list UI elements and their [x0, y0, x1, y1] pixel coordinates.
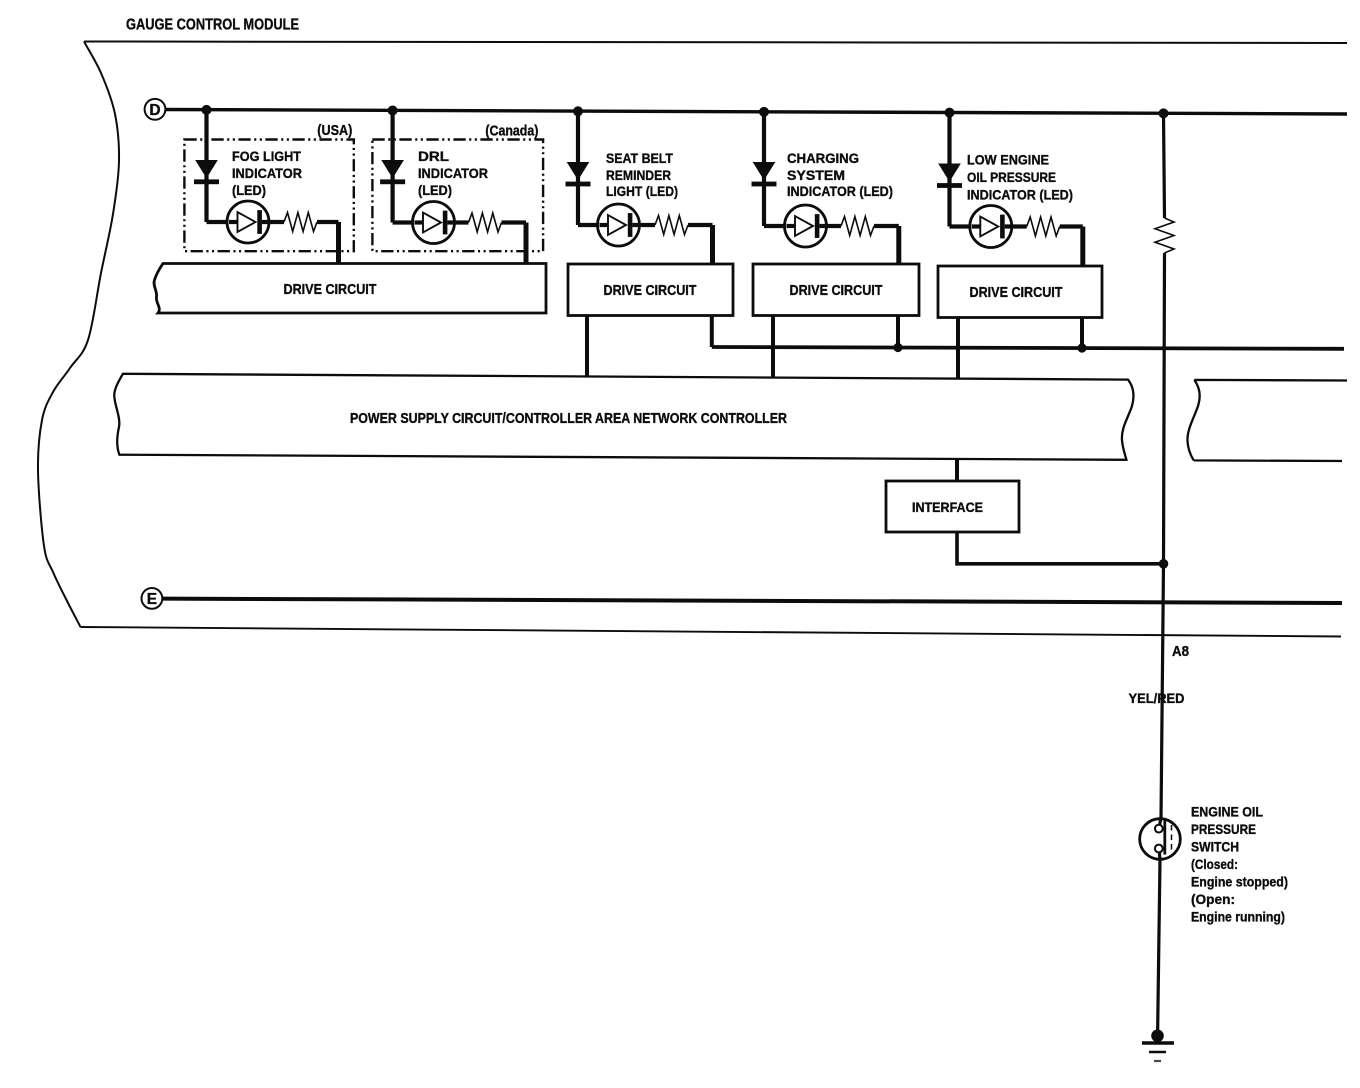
svg-text:OIL PRESSURE: OIL PRESSURE: [967, 170, 1056, 186]
svg-text:CHARGING: CHARGING: [787, 151, 859, 167]
svg-text:SWITCH: SWITCH: [1191, 839, 1239, 855]
svg-text:Engine running): Engine running): [1191, 909, 1285, 925]
svg-text:DRIVE CIRCUIT: DRIVE CIRCUIT: [790, 283, 883, 299]
svg-text:(Open:: (Open:: [1191, 891, 1235, 907]
svg-text:DRIVE CIRCUIT: DRIVE CIRCUIT: [604, 283, 697, 299]
svg-text:LIGHT (LED): LIGHT (LED): [606, 184, 678, 200]
svg-text:DRIVE CIRCUIT: DRIVE CIRCUIT: [970, 285, 1063, 301]
svg-text:INDICATOR: INDICATOR: [418, 166, 488, 182]
svg-text:INDICATOR: INDICATOR: [232, 166, 302, 182]
svg-text:ENGINE OIL: ENGINE OIL: [1191, 804, 1263, 820]
svg-text:POWER SUPPLY CIRCUIT/CONTROLLE: POWER SUPPLY CIRCUIT/CONTROLLER AREA NET…: [350, 411, 787, 427]
svg-text:(LED): (LED): [232, 183, 266, 199]
svg-text:SYSTEM: SYSTEM: [787, 168, 845, 184]
svg-text:DRIVE CIRCUIT: DRIVE CIRCUIT: [284, 282, 377, 298]
svg-text:INDICATOR (LED): INDICATOR (LED): [787, 184, 893, 200]
svg-text:(USA): (USA): [317, 123, 352, 139]
svg-text:DRL: DRL: [418, 149, 449, 165]
svg-text:SEAT BELT: SEAT BELT: [606, 151, 673, 167]
svg-text:FOG LIGHT: FOG LIGHT: [232, 149, 301, 165]
svg-text:LOW ENGINE: LOW ENGINE: [967, 153, 1049, 169]
svg-text:Engine stopped): Engine stopped): [1191, 874, 1288, 890]
svg-text:(Closed:: (Closed:: [1191, 856, 1238, 872]
svg-text:(Canada): (Canada): [485, 124, 538, 140]
svg-text:INDICATOR (LED): INDICATOR (LED): [967, 188, 1073, 204]
svg-text:A8: A8: [1172, 643, 1189, 660]
svg-text:INTERFACE: INTERFACE: [912, 500, 983, 515]
svg-text:REMINDER: REMINDER: [606, 168, 671, 184]
svg-text:GAUGE CONTROL MODULE: GAUGE CONTROL MODULE: [126, 17, 299, 34]
svg-text:PRESSURE: PRESSURE: [1191, 821, 1256, 837]
svg-text:YEL/RED: YEL/RED: [1129, 690, 1185, 706]
svg-text:D: D: [149, 102, 160, 119]
svg-text:E: E: [147, 591, 157, 608]
svg-text:(LED): (LED): [418, 183, 452, 199]
